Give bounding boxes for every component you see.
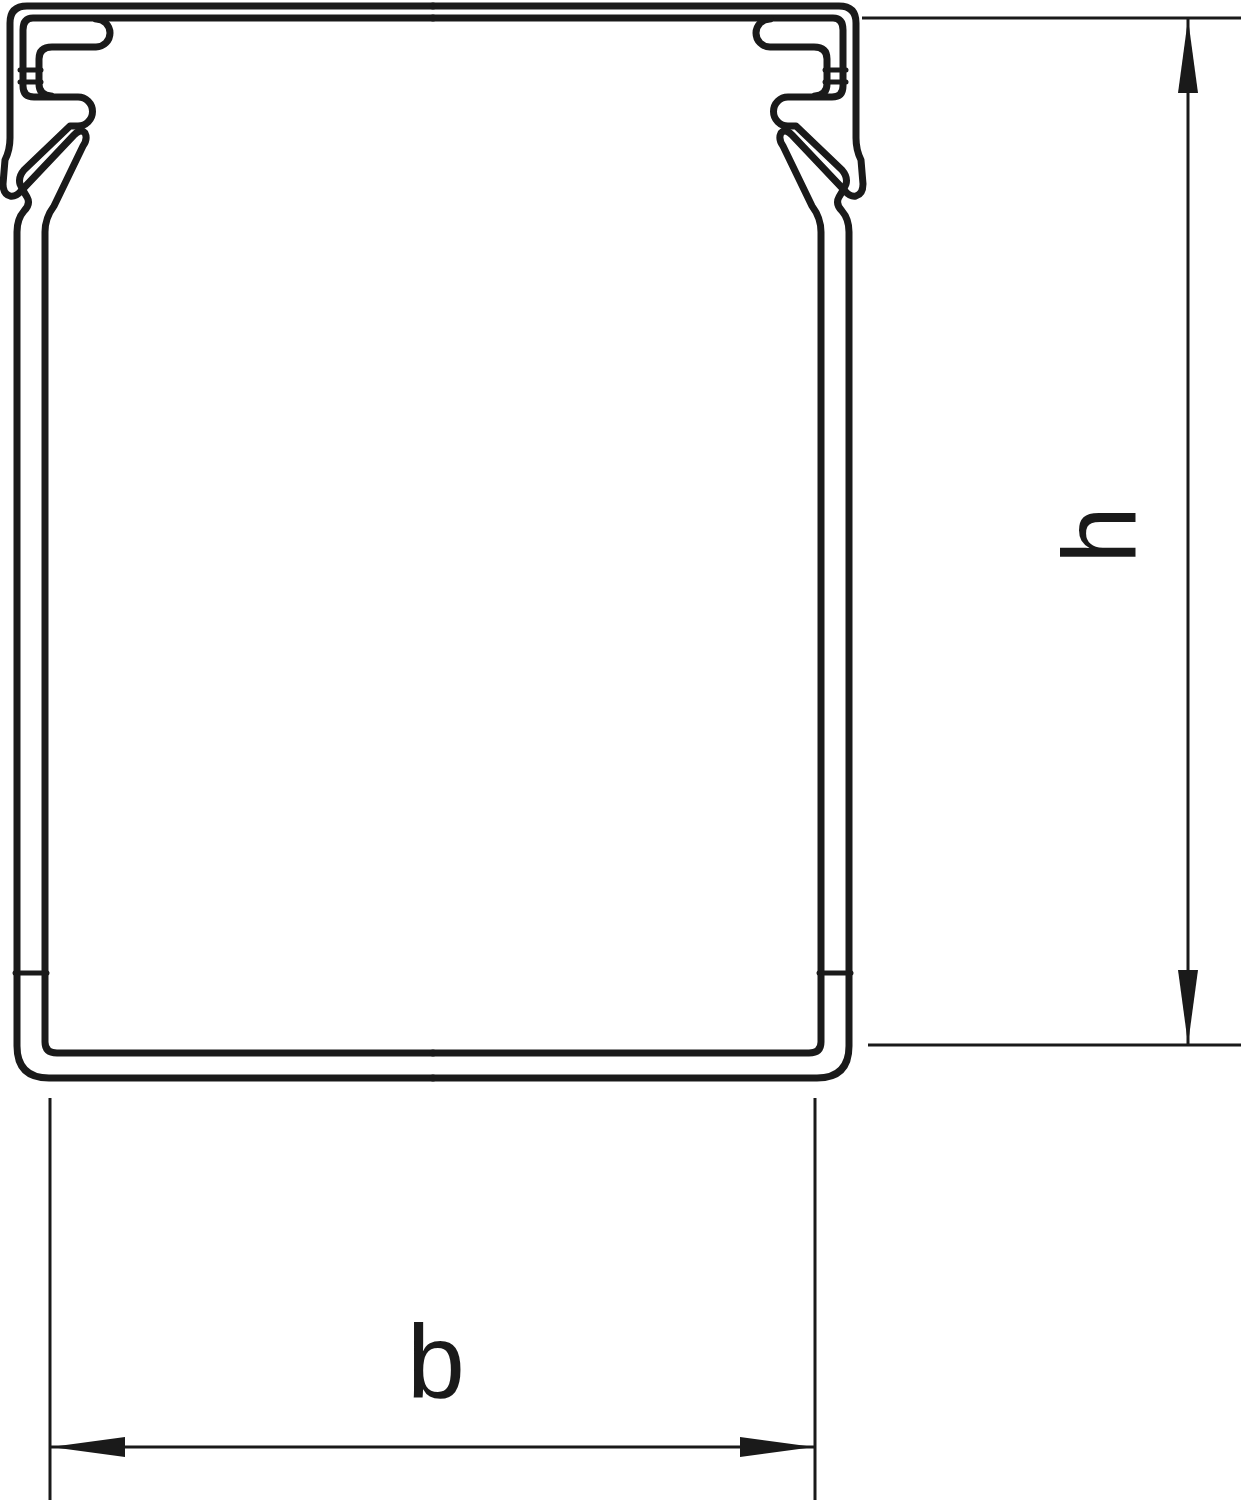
duct-profile-left-half	[3, 6, 433, 1078]
duct-profile-outline	[3, 6, 863, 1078]
trunking-cross-section-drawing: h b	[0, 0, 1241, 1500]
duct-profile-right-half	[433, 6, 863, 1078]
arrow-right-icon	[740, 1437, 814, 1457]
arrow-up-icon	[1178, 19, 1198, 93]
profile-inner-contour	[17, 18, 433, 1078]
profile-cover-hook	[39, 19, 110, 96]
profile-outer-contour	[3, 6, 433, 1053]
arrow-left-icon	[51, 1437, 125, 1457]
width-dimension	[50, 1098, 815, 1500]
technical-drawing-page: h b	[0, 0, 1241, 1500]
dimension-b-label: b	[407, 1303, 465, 1419]
dimension-h-label: h	[1041, 506, 1157, 564]
arrow-down-icon	[1178, 970, 1198, 1044]
